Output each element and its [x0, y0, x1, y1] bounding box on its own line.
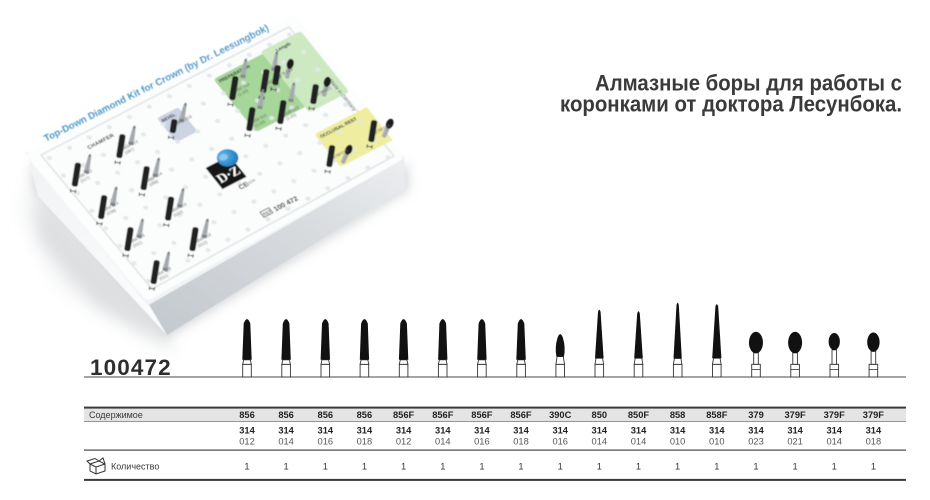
svg-text:856F: 856F: [471, 410, 493, 420]
svg-text:314: 314: [552, 425, 568, 435]
svg-text:018: 018: [866, 437, 882, 447]
svg-text:014: 014: [278, 437, 294, 447]
svg-text:856F: 856F: [432, 410, 454, 420]
svg-text:1: 1: [518, 462, 523, 472]
svg-text:Количество: Количество: [111, 462, 159, 472]
svg-text:314: 314: [278, 425, 294, 435]
svg-text:1: 1: [675, 462, 680, 472]
svg-text:1: 1: [284, 462, 289, 472]
svg-text:314: 314: [474, 425, 490, 435]
svg-text:856: 856: [239, 410, 255, 420]
svg-text:858: 858: [670, 410, 686, 420]
svg-text:314: 314: [787, 425, 803, 435]
svg-text:1: 1: [479, 462, 484, 472]
svg-text:314: 314: [239, 425, 255, 435]
svg-text:379: 379: [748, 410, 764, 420]
svg-text:014: 014: [435, 437, 451, 447]
svg-text:023: 023: [748, 437, 764, 447]
svg-text:314: 314: [435, 425, 451, 435]
svg-text:016: 016: [474, 437, 490, 447]
svg-text:010: 010: [709, 437, 725, 447]
svg-text:850: 850: [592, 410, 608, 420]
svg-text:1: 1: [323, 462, 328, 472]
svg-text:379F: 379F: [863, 410, 885, 420]
svg-text:379F: 379F: [784, 410, 806, 420]
svg-text:1: 1: [362, 462, 367, 472]
svg-text:314: 314: [513, 425, 529, 435]
svg-text:1: 1: [597, 462, 602, 472]
svg-text:коронками от доктора Лесунбока: коронками от доктора Лесунбока.: [560, 92, 902, 117]
svg-text:856: 856: [278, 410, 294, 420]
svg-text:014: 014: [826, 437, 842, 447]
svg-text:314: 314: [318, 425, 334, 435]
svg-text:314: 314: [592, 425, 608, 435]
svg-text:856F: 856F: [510, 410, 532, 420]
svg-text:014: 014: [592, 437, 608, 447]
svg-text:1: 1: [440, 462, 445, 472]
svg-text:856: 856: [357, 410, 373, 420]
svg-text:018: 018: [513, 437, 529, 447]
svg-text:314: 314: [866, 425, 882, 435]
svg-text:1: 1: [832, 462, 837, 472]
svg-text:012: 012: [396, 437, 412, 447]
svg-text:314: 314: [748, 425, 764, 435]
svg-text:016: 016: [552, 437, 568, 447]
svg-text:314: 314: [709, 425, 725, 435]
svg-text:856F: 856F: [393, 410, 415, 420]
svg-text:858F: 858F: [706, 410, 728, 420]
svg-text:1: 1: [871, 462, 876, 472]
svg-text:1: 1: [753, 462, 758, 472]
svg-text:390C: 390C: [549, 410, 572, 420]
svg-text:314: 314: [631, 425, 647, 435]
svg-text:016: 016: [318, 437, 334, 447]
svg-text:1: 1: [636, 462, 641, 472]
svg-text:1: 1: [401, 462, 406, 472]
svg-text:021: 021: [787, 437, 803, 447]
svg-text:850F: 850F: [628, 410, 650, 420]
svg-text:314: 314: [396, 425, 412, 435]
svg-text:1: 1: [793, 462, 798, 472]
svg-text:100472: 100472: [90, 355, 172, 380]
svg-text:014: 014: [631, 437, 647, 447]
svg-text:379F: 379F: [824, 410, 846, 420]
svg-text:314: 314: [826, 425, 842, 435]
svg-text:314: 314: [670, 425, 686, 435]
svg-text:010: 010: [670, 437, 686, 447]
svg-text:856: 856: [318, 410, 334, 420]
svg-text:018: 018: [357, 437, 373, 447]
svg-text:Содержимое: Содержимое: [89, 410, 143, 420]
svg-text:1: 1: [714, 462, 719, 472]
svg-text:1: 1: [244, 462, 249, 472]
svg-text:012: 012: [239, 437, 255, 447]
svg-text:314: 314: [357, 425, 373, 435]
svg-text:1: 1: [558, 462, 563, 472]
